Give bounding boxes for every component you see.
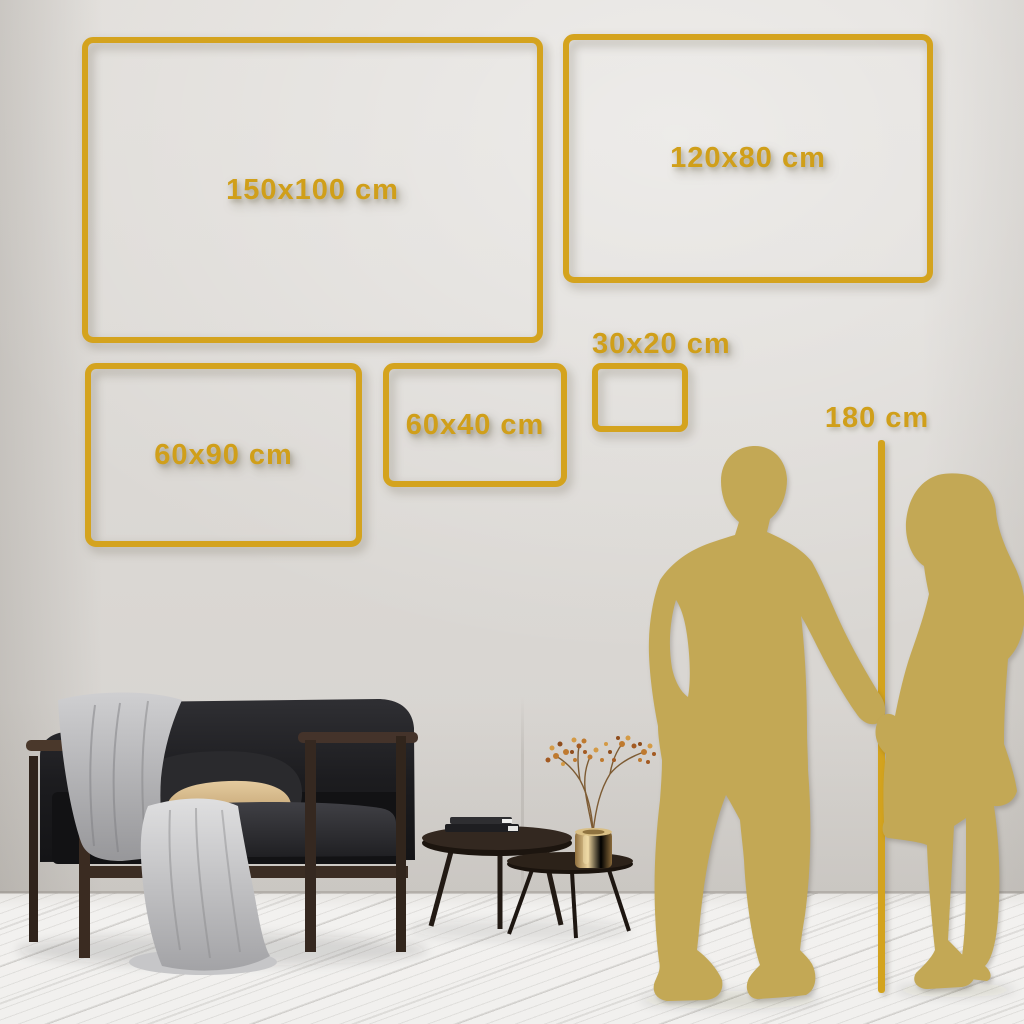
wall-crease [521, 696, 524, 893]
size-frame-30x20: 30x20 cm [592, 363, 688, 432]
size-frame-60x40: 60x40 cm [383, 363, 567, 487]
size-label-150x100: 150x100 cm [226, 174, 399, 207]
size-frame-150x100: 150x100 cm [82, 37, 543, 343]
size-label-120x80: 120x80 cm [670, 142, 826, 175]
height-reference-line [878, 440, 885, 993]
height-reference-label: 180 cm [825, 402, 929, 435]
wall-shade [0, 700, 1024, 893]
floor [0, 893, 1024, 1024]
size-label-60x40: 60x40 cm [406, 409, 545, 442]
baseboard-line [0, 891, 1024, 894]
size-frame-60x90: 60x90 cm [85, 363, 362, 547]
size-frame-120x80: 120x80 cm [563, 34, 933, 283]
size-label-30x20: 30x20 cm [592, 328, 731, 361]
size-label-60x90: 60x90 cm [154, 439, 293, 472]
size-guide-scene: 150x100 cm 120x80 cm 60x90 cm 60x40 cm 3… [0, 0, 1024, 1024]
